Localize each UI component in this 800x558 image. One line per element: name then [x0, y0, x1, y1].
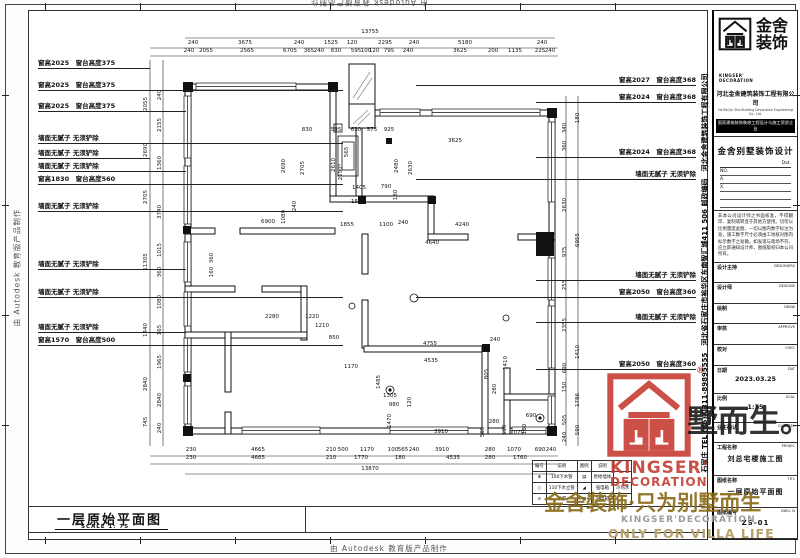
dim-label: 3910	[435, 447, 449, 453]
left-annotation: 窗高1830 窗台高度560	[38, 175, 343, 185]
dim-label: 225	[535, 48, 546, 54]
dim-label: 230	[186, 455, 197, 461]
fold-tick	[425, 537, 426, 544]
dim-label: 120	[407, 397, 413, 408]
title-block-field: 工程名称PROJEC刘总宅楼施工图	[714, 443, 797, 476]
dim-label: 150	[562, 382, 568, 393]
dim-label: 4665	[251, 455, 265, 461]
left-annotation: 墙面无腻子 无须铲除	[38, 323, 186, 333]
left-annotation: 墙面无腻子 无须铲除	[38, 260, 186, 270]
dim-label: 830	[331, 48, 342, 54]
field-label-en: CHEC	[785, 346, 795, 350]
right-annotation: 墙面无腻子 无须铲除	[536, 313, 696, 323]
dim-label: 595	[351, 48, 362, 54]
dim-label: 565	[344, 147, 350, 158]
dim-label: 1015	[157, 243, 163, 257]
dim-label: 100	[388, 447, 399, 453]
logo-cn-line2: 装饰	[756, 34, 788, 51]
dim-label: 240	[403, 48, 414, 54]
dim-label: 595	[331, 127, 342, 133]
field-label-en: APPROVE	[778, 325, 795, 329]
dim-label: 3910	[434, 429, 448, 435]
dat-label: Dat.	[720, 161, 791, 168]
dim-label: 590	[575, 425, 581, 436]
field-label: 工程名称	[717, 445, 737, 451]
left-annotation: 墙面无腻子 无须铲除	[38, 134, 343, 144]
dim-label: 200	[488, 48, 499, 54]
dim-label: 280	[485, 447, 496, 453]
fold-tick	[330, 3, 331, 10]
left-annotation: 窗高2025 窗台高度375	[38, 81, 343, 91]
dim-label: 240	[184, 48, 195, 54]
field-label: 设计主持	[717, 265, 737, 271]
company-name-en: He Bei Jin She Building Decoration Engin…	[714, 108, 797, 118]
dim-label: 3675	[238, 40, 252, 46]
dim-label: 565	[398, 447, 409, 453]
sheet-scale: SCALE 1: 75	[81, 524, 129, 530]
dim-label: 2840	[143, 377, 149, 391]
field-label: 日期	[717, 368, 727, 374]
dim-label: 2840	[157, 393, 163, 407]
dim-label: 630	[351, 127, 362, 133]
dim-label: 1405	[352, 185, 366, 191]
title-block-field: 设计师DESIGNE	[714, 283, 797, 304]
dim-label: 745	[143, 417, 149, 428]
dim-label: 160	[209, 267, 215, 278]
title-block-field: 校对CHEC	[714, 345, 797, 366]
fold-tick	[793, 95, 800, 96]
title-block: 金舍 装饰 KINGSER' DECORATION 河北金舍建筑装饰工程有限公司…	[712, 10, 798, 540]
field-label-en: DESIGNE	[779, 284, 795, 288]
dim-label: 2055	[199, 48, 213, 54]
dim-label: 830	[302, 127, 313, 133]
dim-label: 2155	[157, 118, 163, 132]
fold-tick	[140, 537, 141, 544]
dim-label: 1470	[387, 414, 393, 428]
dim-label: 795	[384, 48, 395, 54]
dim-label: 240	[188, 40, 199, 46]
dim-label: 4535	[424, 358, 438, 364]
legend-header: 编号	[533, 461, 547, 472]
dim-label: 1220	[305, 314, 319, 320]
dim-label: 4755	[423, 341, 437, 347]
dim-label: 1855	[340, 222, 354, 228]
field-label: 绘制	[717, 306, 727, 312]
dim-label: 1100	[379, 222, 393, 228]
dim-label: 240	[398, 220, 409, 226]
dim-label: 805	[484, 369, 490, 380]
kingser-logo-icon	[718, 17, 752, 51]
brand-line: 金舍别墅装饰设计	[717, 139, 794, 159]
fold-tick	[793, 425, 800, 426]
dim-label: 505	[562, 415, 568, 426]
field-label-en: DESIGNERS	[774, 264, 795, 268]
field-label: 审核	[717, 326, 727, 332]
glazing-symbol	[349, 64, 375, 128]
logo-cn-line1: 金舍	[756, 17, 788, 34]
dim-label: 240	[409, 447, 420, 453]
field-label-en: DRAW	[784, 305, 795, 309]
logo-en: KINGSER' DECORATION	[714, 73, 797, 86]
logo-en2: DECORATION	[719, 78, 753, 83]
logo-area: 金舍 装饰	[714, 11, 797, 73]
dim-label: 280	[489, 419, 500, 425]
no-line	[720, 192, 791, 200]
dim-label: 240	[546, 447, 557, 453]
dim-label: 505	[480, 427, 486, 438]
dim-label: 240	[545, 48, 556, 54]
left-annotation: 墙面无腻子 无须铲除	[38, 288, 343, 298]
dim-label: 240	[490, 337, 501, 343]
dim-label: 3625	[448, 138, 462, 144]
dim-label: 280	[485, 455, 496, 461]
dim-label: 590	[502, 425, 508, 436]
watermark-en-big: ONLY FOR VILLA LIFE	[608, 526, 775, 541]
dim-label: 3625	[453, 48, 467, 54]
left-annotation: 墙面无腻子 无须铲除	[38, 202, 343, 212]
left-annotation: 窗高1570 窗台高度500	[38, 336, 343, 346]
dim-label: 1410	[503, 356, 509, 370]
dim-label: 365	[304, 48, 315, 54]
watermark-en-small: KINGSER'DECORATION	[621, 515, 756, 525]
dim-label: 1525	[324, 40, 338, 46]
right-annotation: 窗高2050 窗台高度360	[416, 288, 696, 298]
dim-label: 1080	[281, 210, 287, 224]
dim-label: 210	[326, 447, 337, 453]
no-line: X.	[720, 184, 791, 192]
left-annotation: 窗高2025 窗台高度375	[38, 102, 186, 112]
right-annotation: 墙面无腻子 无须铲除	[536, 271, 696, 281]
fold-tick	[140, 3, 141, 10]
fold-tick	[793, 205, 800, 206]
dim-label: 1410	[575, 345, 581, 359]
dim-label: 13755	[361, 29, 379, 35]
dim-label: 1170	[344, 364, 358, 370]
fold-tick	[520, 537, 521, 544]
dim-label: 120	[369, 48, 380, 54]
dim-label: 13870	[361, 466, 379, 472]
dim-label: 5180	[458, 40, 472, 46]
left-annotation: 墙面无腻子 无须铲除	[38, 162, 186, 172]
copyright-note: 非本公司设计师之书面核准，不得翻印、复制或转变于其他方使用。切勿以比例量度此图，…	[714, 211, 797, 263]
watermark-dark: 墅而生。	[687, 396, 800, 441]
right-annotation: 窗高2050 窗台高度360	[536, 360, 696, 370]
fold-tick	[425, 3, 426, 10]
dim-label: 2610	[331, 158, 337, 172]
title-block-field: 绘制DRAW	[714, 304, 797, 325]
fold-tick	[45, 537, 46, 544]
dim-label: 1786	[575, 393, 581, 407]
dim-label: 240	[562, 432, 568, 443]
dim-label: 280	[492, 384, 498, 395]
field-label: 设计师	[717, 285, 732, 291]
dim-label: 2705	[300, 161, 306, 175]
dim-label: 2690	[281, 159, 287, 173]
no-line: A.	[720, 176, 791, 184]
title-block-field: 设计主持DESIGNERS	[714, 263, 797, 284]
dim-label: 1770	[354, 455, 368, 461]
dim-label: 2565	[240, 48, 254, 54]
dim-label: 1760	[513, 455, 527, 461]
dim-label: 980	[389, 402, 400, 408]
dim-label: 240	[157, 90, 163, 101]
field-label: 校对	[717, 347, 727, 353]
dim-label: 230	[186, 447, 197, 453]
band-divider	[305, 507, 306, 532]
dim-label: 120	[347, 40, 358, 46]
field-label: 图纸名称	[717, 478, 737, 484]
dim-label: 2280	[265, 314, 279, 320]
autodesk-stamp-left: 由 Autodesk 教育版产品制作	[12, 148, 23, 388]
dim-label: 6955	[575, 233, 581, 247]
fold-tick	[2, 95, 9, 96]
dim-label: 240	[409, 40, 420, 46]
dim-label: 240	[537, 40, 548, 46]
fold-tick	[330, 537, 331, 544]
dim-label: 1485	[376, 375, 382, 389]
legend-cell: 100下水管	[546, 472, 577, 483]
dim-label: 2295	[378, 40, 392, 46]
dim-label: 575	[367, 127, 378, 133]
field-label-en: DWG. N	[781, 509, 795, 513]
right-annotation: 窗高2024 窗台高度368	[536, 148, 696, 158]
field-value: 2023.03.25	[717, 375, 794, 383]
dim-label: 1135	[508, 48, 522, 54]
right-annotation: 墙面无腻子 无须铲除	[416, 170, 696, 180]
fold-tick	[520, 3, 521, 10]
no-line: NO.	[720, 168, 791, 176]
dim-label: 180	[522, 424, 528, 435]
dim-label: 180	[575, 113, 581, 124]
field-value: 刘总宅楼施工图	[717, 454, 794, 464]
dim-label: 4240	[455, 222, 469, 228]
fold-tick	[235, 537, 236, 544]
dim-label: 500	[338, 447, 349, 453]
qualification-line: 国家建筑装饰装修工程设计与施工资质企业	[716, 119, 795, 133]
dim-label: 2630	[562, 198, 568, 212]
autodesk-stamp-top: 由 Autodesk 教育版产品制作	[310, 0, 428, 8]
plumbing-symbols	[349, 294, 544, 422]
fold-tick	[2, 315, 9, 316]
dim-label: 2480	[394, 159, 400, 173]
company-name: 河北金舍建筑装饰工程有限公司	[714, 86, 797, 108]
fold-tick	[45, 3, 46, 10]
dim-label: 790	[381, 184, 392, 190]
fold-tick	[235, 3, 236, 10]
legend-header: 说明	[546, 461, 577, 472]
dim-label: 6705	[283, 48, 297, 54]
dim-label: 1170	[360, 447, 374, 453]
dim-label: 2630	[408, 161, 414, 175]
dim-label: 4665	[251, 447, 265, 453]
watermark-gold: 金舍裝飾·只为别墅而生	[544, 487, 761, 517]
drawing-sheet: 1375524036752401525120229524051802402402…	[0, 0, 800, 558]
legend-header: 图例	[577, 461, 591, 472]
kingser-stamp-logo-icon	[606, 372, 692, 458]
fold-tick	[793, 315, 800, 316]
dim-label: 690	[526, 413, 537, 419]
fold-tick	[615, 537, 616, 544]
dim-label: 240	[294, 40, 305, 46]
dim-label: 925	[384, 127, 395, 133]
dim-label: 975	[562, 247, 568, 258]
dim-label: 240	[314, 48, 325, 54]
fold-tick	[2, 205, 9, 206]
dim-label: 1210	[315, 323, 329, 329]
dim-label: 1305	[383, 393, 397, 399]
field-label-en: PROJEC	[782, 444, 795, 448]
right-annotation: 窗高2027 窗台高度368	[416, 76, 696, 86]
dim-label: 180	[395, 455, 406, 461]
fold-tick	[2, 425, 9, 426]
dim-label: 1070	[507, 447, 521, 453]
legend-cell: ⊕	[533, 472, 547, 483]
dim-label: 1965	[157, 355, 163, 369]
left-annotation: 窗高2025 窗台高度375	[38, 59, 150, 69]
registered-mark: ®	[696, 366, 705, 376]
dim-label: 690	[535, 447, 546, 453]
no-line	[720, 200, 791, 208]
dim-label: 6900	[261, 219, 275, 225]
autodesk-stamp-bottom: 由 Autodesk 教育版产品制作	[330, 543, 448, 554]
title-block-field: 日期DAT2023.03.25	[714, 366, 797, 395]
field-label-en: TITL	[788, 477, 795, 481]
dim-label: 340	[562, 123, 568, 134]
dim-label: 210	[326, 455, 337, 461]
dim-label: 180	[393, 190, 399, 201]
no-lines: NO.A.X.	[717, 168, 794, 208]
dim-label: 240	[157, 423, 163, 434]
dim-label: 4535	[446, 455, 460, 461]
left-annotation: 墙面无腻子 无须铲除	[38, 149, 150, 159]
legend-cell: ▤	[577, 472, 591, 483]
dim-label: 1520	[351, 199, 365, 205]
dim-label: 360	[209, 253, 215, 264]
dim-label: 4640	[425, 240, 439, 246]
right-annotation: 窗高2024 窗台高度368	[536, 93, 696, 103]
field-label-en: DAT	[788, 367, 795, 371]
fold-tick	[615, 3, 616, 10]
title-block-field: 审核APPROVE	[714, 324, 797, 345]
